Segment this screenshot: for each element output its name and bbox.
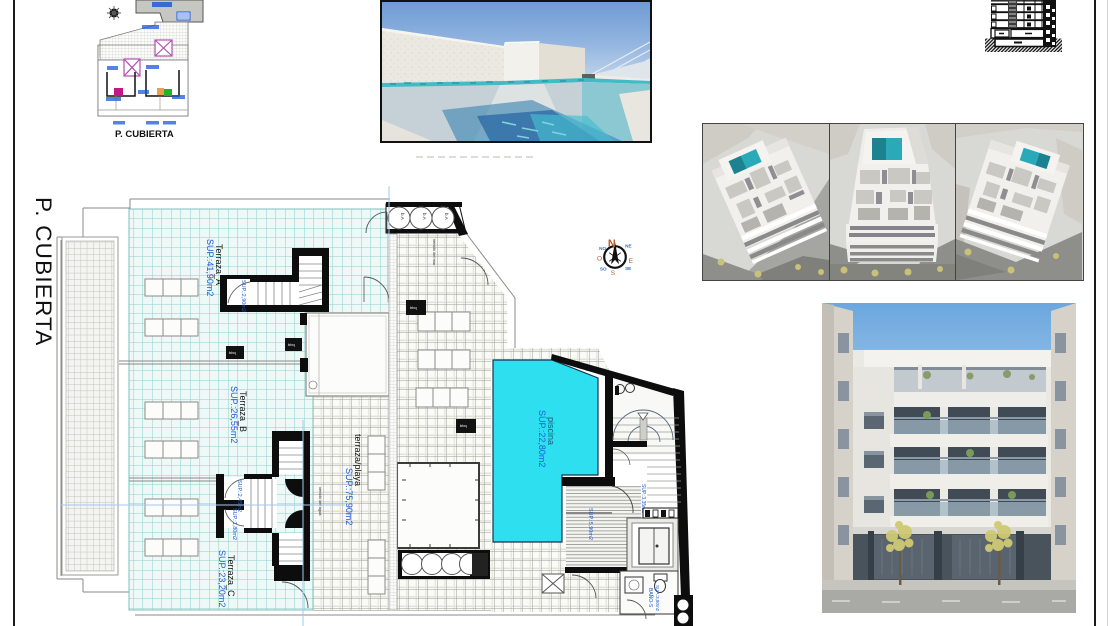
svg-text:O: O xyxy=(597,256,602,263)
svg-text:SUP.:3,80m2: SUP.:3,80m2 xyxy=(655,585,660,612)
svg-text:E: E xyxy=(629,258,634,265)
svg-text:SE: SE xyxy=(625,266,631,271)
svg-text:b.A: b.A xyxy=(422,213,427,220)
svg-text:vertido del mar: vertido del mar xyxy=(432,239,437,266)
svg-text:bbq: bbq xyxy=(288,342,295,347)
svg-text:SUP.:75,90m2: SUP.:75,90m2 xyxy=(344,468,354,525)
svg-text:NO: NO xyxy=(599,246,606,251)
svg-text:bbq: bbq xyxy=(229,350,236,355)
svg-text:NE: NE xyxy=(625,244,631,249)
svg-text:vertido del agua: vertido del agua xyxy=(318,487,323,516)
svg-text:P. CUBIERTA: P. CUBIERTA xyxy=(115,129,174,140)
svg-text:bbq: bbq xyxy=(460,423,467,428)
svg-text:SUP.:22,80m2: SUP.:22,80m2 xyxy=(537,410,547,467)
svg-text:SUP.:26,55m2: SUP.:26,55m2 xyxy=(229,386,239,443)
svg-text:S: S xyxy=(611,270,616,277)
svg-text:SUP.:1,80m2: SUP.:1,80m2 xyxy=(231,508,237,540)
svg-text:SUP.:23,20m2: SUP.:23,20m2 xyxy=(217,550,227,607)
svg-text:BAÑO-S: BAÑO-S xyxy=(647,588,654,608)
svg-text:b.A: b.A xyxy=(400,213,405,220)
svg-text:b.A: b.A xyxy=(444,213,449,220)
svg-text:SUP.:41,90m2: SUP.:41,90m2 xyxy=(205,239,215,296)
svg-text:bbq: bbq xyxy=(410,305,417,310)
svg-text:SO: SO xyxy=(600,267,607,272)
svg-text:SUP.:2,90m2: SUP.:2,90m2 xyxy=(240,280,246,312)
svg-text:SUP.:5,90m2: SUP.:5,90m2 xyxy=(587,508,593,540)
svg-text:P. CUBIERTA: P. CUBIERTA xyxy=(31,197,56,347)
svg-text:N: N xyxy=(608,238,616,250)
